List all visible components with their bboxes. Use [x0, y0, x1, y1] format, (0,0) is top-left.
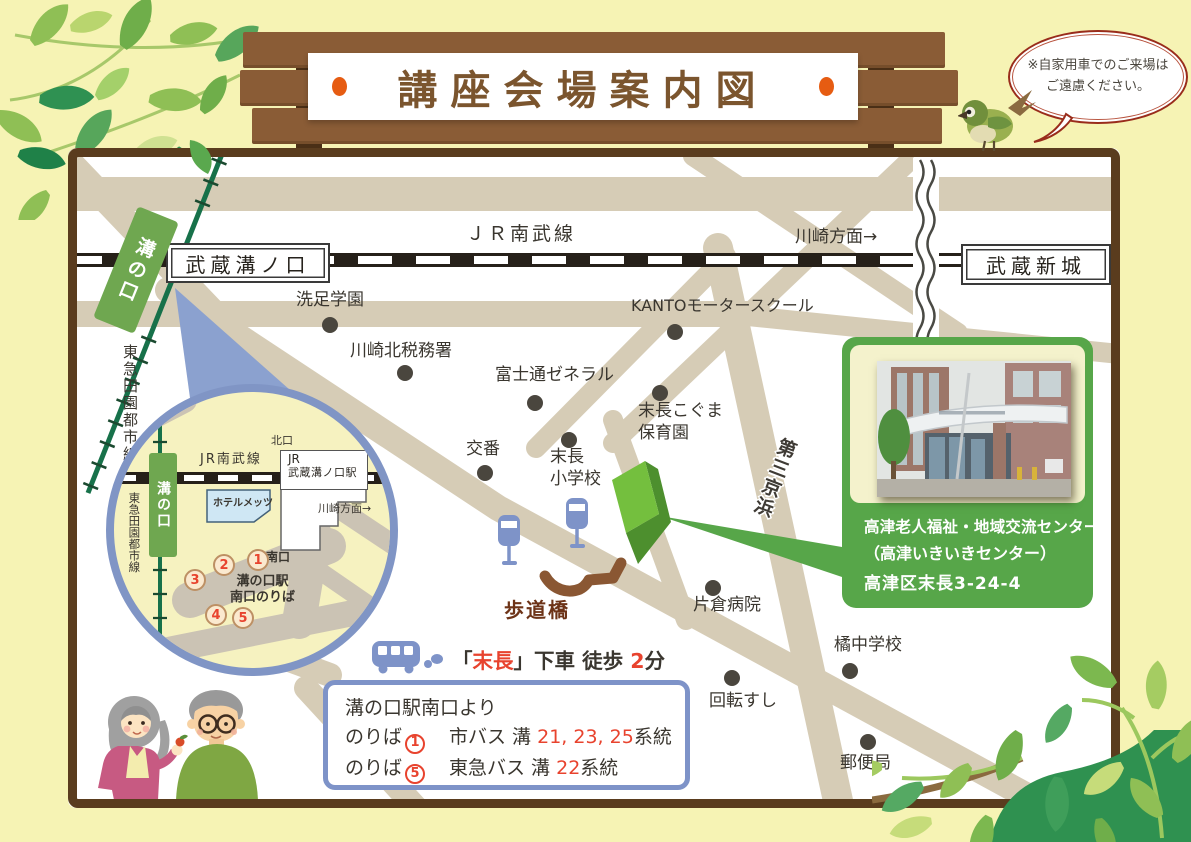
- routes-heading: 溝の口駅南口より: [345, 694, 685, 723]
- landmark-label: 交番: [466, 438, 500, 460]
- bus-access-row: 「末長」下車 徒歩 2分: [372, 638, 772, 680]
- destination-address: 高津区末長3-24-4: [864, 569, 1021, 594]
- station-detail-inset: JR南武線 北口 JR 武蔵溝ノ口駅 ホテルメッツ 川崎方面→ 南口 溝の口駅 …: [106, 384, 398, 676]
- elderly-couple-illustration: [80, 686, 280, 800]
- inset-station-line1: JR: [288, 453, 367, 467]
- inset-stops-label: 溝の口駅 南口のりば: [230, 574, 295, 607]
- route-row: のりば5東急バス 溝 22系統: [345, 754, 685, 784]
- foliage-bottom-right-icon: [872, 648, 1191, 842]
- venue-guide-poster: 講座会場案内図 ※自家用車でのご来場は ご遠慮ください。: [0, 0, 1191, 842]
- inset-station-label: 溝の口: [153, 481, 173, 529]
- title-banner: 講座会場案内図: [308, 53, 858, 120]
- destination-name: 高津老人福祉・地域交流センター: [864, 515, 1100, 537]
- landmark-label: 富士通ゼネラル: [495, 364, 614, 386]
- bus-bay-5: 5: [232, 607, 254, 629]
- route-row: のりば1市バス 溝 21, 23, 25系統: [345, 723, 685, 753]
- bus-text-after: 」下車 徒歩: [514, 649, 631, 673]
- landmark-label: 洗足学園: [296, 289, 364, 311]
- bus-stop-name: 末長: [473, 649, 514, 673]
- landmark-label: 末長 小学校: [550, 446, 601, 490]
- page-title: 講座会場案内図: [398, 58, 769, 116]
- bay-label: のりば: [345, 757, 402, 779]
- bridge-label: 歩道橋: [504, 594, 570, 623]
- station-box-musashi-mizonokuchi: 武蔵溝ノ口: [166, 243, 330, 283]
- route-numbers: 22: [556, 757, 580, 779]
- landmark-label: 片倉病院: [693, 594, 761, 616]
- orange-dot-icon: [819, 77, 834, 96]
- bus-bay-1: 1: [247, 549, 269, 571]
- bird-icon: [958, 86, 1040, 154]
- landmark-label: KANTOモータースクール: [631, 296, 814, 317]
- inset-south-exit-label: 南口: [266, 550, 290, 565]
- bay-number-icon: 5: [405, 764, 425, 784]
- map-break-icon: [913, 158, 939, 354]
- inset-station-box-mizonokuchi: 溝の口: [149, 453, 177, 557]
- destination-pointer: [660, 516, 842, 577]
- destination-subname: （高津いきいきセンター）: [864, 540, 1056, 564]
- route-line: 東急バス 溝: [449, 757, 556, 779]
- station-box-musashi-shinjo: 武蔵新城: [961, 244, 1111, 285]
- bay-number-icon: 1: [405, 734, 425, 754]
- bus-stop-icon: [498, 515, 520, 565]
- landmark-label: 川崎北税務署: [350, 340, 452, 362]
- inset-direction-label: 川崎方面→: [318, 502, 371, 516]
- route-suffix: 系統: [634, 726, 672, 748]
- inset-tokyu-line-label: 東急田園都市線: [127, 492, 141, 573]
- route-line: 市バス 溝: [449, 726, 537, 748]
- destination-card: 高津老人福祉・地域交流センター （高津いきいきセンター） 高津区末長3-24-4: [842, 337, 1093, 608]
- bus-icon: [372, 638, 444, 680]
- orange-dot-icon: [332, 77, 347, 96]
- jr-line-label: ＪＲ南武線: [466, 222, 576, 247]
- bus-text-open: 「: [452, 649, 473, 673]
- landmark-label: 末長こぐま 保育園: [638, 400, 723, 444]
- kawasaki-direction-label: 川崎方面→: [795, 226, 877, 248]
- landmark-label: 回転すし: [709, 690, 777, 712]
- inset-station-box: JR 武蔵溝ノ口駅: [280, 450, 368, 490]
- bus-routes-box: 溝の口駅南口より のりば1市バス 溝 21, 23, 25系統 のりば5東急バス…: [323, 680, 690, 790]
- destination-photo: [877, 361, 1071, 497]
- bus-alight-text: 「末長」下車 徒歩 2分: [452, 644, 665, 674]
- bay-label: のりば: [345, 726, 402, 748]
- inset-station-line2: 武蔵溝ノ口駅: [288, 467, 367, 480]
- photo-panel: [850, 345, 1085, 503]
- route-suffix: 系統: [580, 757, 618, 779]
- route-numbers: 21, 23, 25: [537, 726, 634, 748]
- bus-bay-2: 2: [213, 554, 235, 576]
- inset-hotel-label: ホテルメッツ: [213, 498, 273, 511]
- inset-north-exit-label: 北口: [271, 434, 293, 448]
- bus-bay-3: 3: [184, 569, 206, 591]
- leaf-icon: [182, 138, 222, 176]
- inset-jr-line-label: JR南武線: [200, 452, 262, 468]
- bus-bay-4: 4: [205, 604, 227, 626]
- walk-minutes: 2: [630, 649, 644, 673]
- minutes-unit: 分: [645, 649, 666, 673]
